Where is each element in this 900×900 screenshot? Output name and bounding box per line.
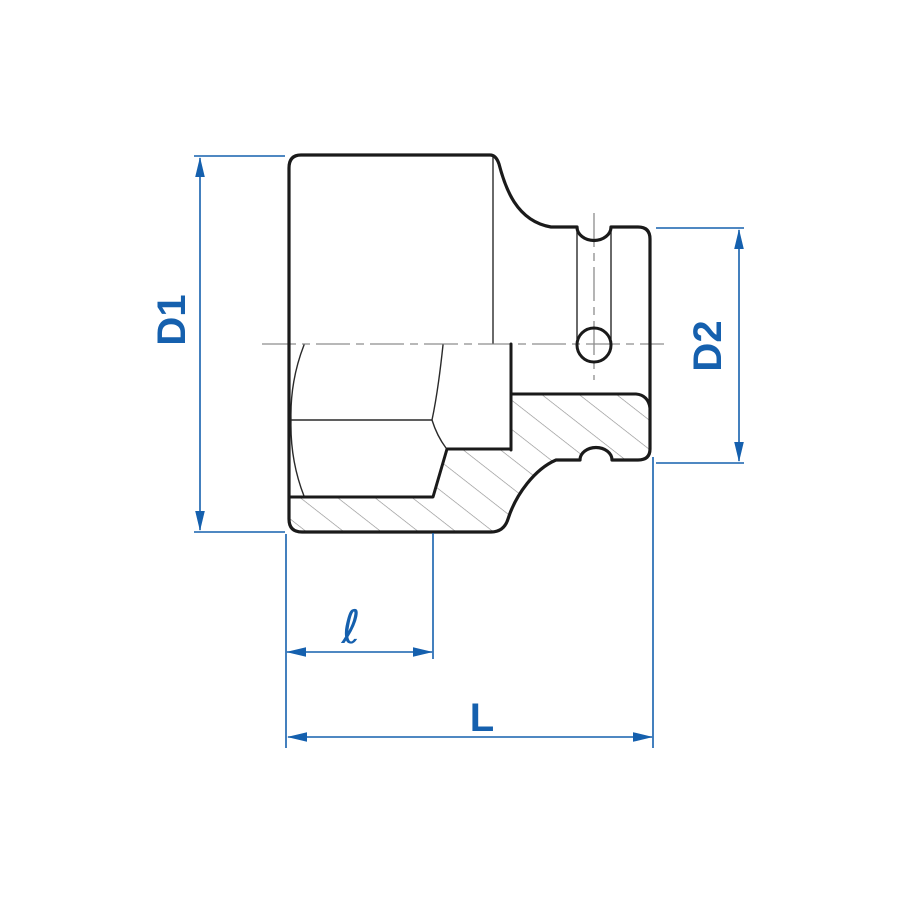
arrow-left-icon — [287, 732, 307, 742]
label-d1: D1 — [150, 294, 194, 345]
arrow-down-icon — [195, 511, 205, 531]
drawing-canvas: D1 D2 ℓ L — [0, 0, 900, 900]
arrow-left-icon — [286, 647, 306, 657]
arrow-right-icon — [633, 732, 653, 742]
label-hex-depth: ℓ — [340, 600, 360, 654]
arrow-right-icon — [413, 647, 433, 657]
socket-technical-drawing: D1 D2 ℓ L — [0, 0, 900, 900]
label-overall-length: L — [470, 696, 494, 740]
section-hatch-area — [289, 394, 650, 532]
arrow-up-icon — [734, 229, 744, 249]
arrow-down-icon — [734, 442, 744, 462]
label-d2: D2 — [686, 320, 730, 371]
hex-end-chamfer — [432, 345, 446, 448]
arrow-up-icon — [195, 157, 205, 177]
